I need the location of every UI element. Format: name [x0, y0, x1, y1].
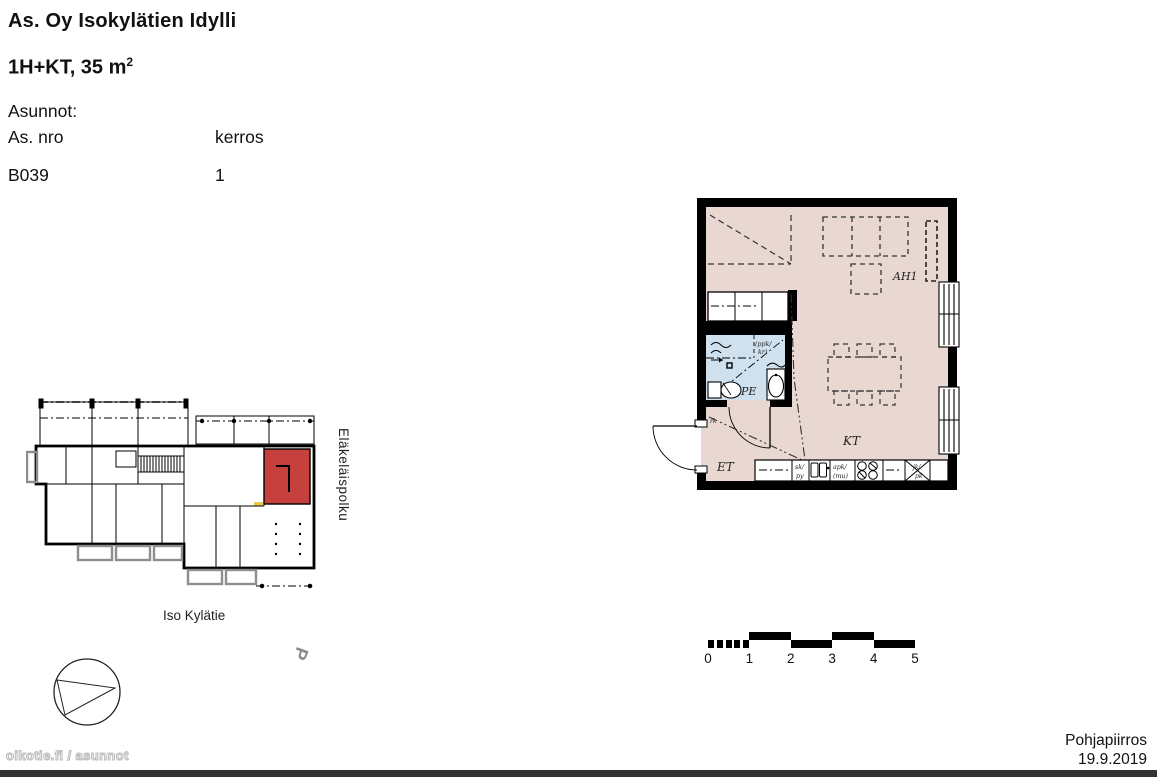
- apartment-type: 1H+KT, 35 m2: [8, 55, 133, 80]
- dishwasher-label-line2: (mu): [833, 473, 848, 480]
- scale-tick-3: 3: [828, 651, 836, 666]
- drawing-info: Pohjapiirros 19.9.2019: [1065, 731, 1147, 769]
- page-title: As. Oy Isokylätien Idylli: [8, 10, 236, 33]
- site-lower-rail: [256, 584, 314, 588]
- street-label-iso-kylatie: Iso Kylätie: [163, 608, 225, 623]
- site-entrance-marker: [254, 502, 263, 506]
- scale-tick-4: 4: [870, 651, 878, 666]
- drawing-type: Pohjapiirros: [1065, 731, 1147, 750]
- apartment-floor-plan: (ppk/ kr) PE rk: [642, 198, 962, 490]
- column-floor: kerros: [215, 127, 264, 148]
- sink-icon: [767, 363, 785, 400]
- cleaning-cabinet-label-line1: sk/: [795, 464, 805, 471]
- fridge-freezer-label-line1: jk/: [911, 464, 921, 471]
- scale-tick-1: 1: [746, 651, 754, 666]
- north-flag-icon: P: [278, 642, 313, 674]
- entry-label: ET: [716, 460, 735, 474]
- drawing-date: 19.9.2019: [1065, 750, 1147, 769]
- washer-dryer-label-line2: kr): [758, 349, 768, 356]
- bathroom-label: PE: [740, 385, 756, 398]
- floorplan-page: { "header": { "title": "As. Oy Isokyläti…: [0, 0, 1157, 777]
- kitchen-sink-icon: [811, 463, 829, 477]
- scale-bar: 0 1 2 3 4 5: [700, 629, 930, 669]
- kitchen-label: KT: [842, 434, 861, 448]
- closet-row: [708, 290, 797, 321]
- site-upper-right-terrace: [196, 416, 314, 444]
- dishwasher-label-line1: apk/: [833, 464, 848, 471]
- kitchen-counter: sk/ py apk/ (mu) jk/ pk: [755, 460, 948, 481]
- compass-icon: [50, 652, 130, 732]
- scale-tick-2: 2: [787, 651, 795, 666]
- site-highlighted-unit: [264, 449, 310, 504]
- fridge-freezer-label-line2: pk: [915, 473, 923, 480]
- scale-tick-5: 5: [911, 651, 919, 666]
- apartments-label: Asunnot:: [8, 101, 77, 122]
- window-symbol-lower: [939, 387, 959, 454]
- floor-value: 1: [215, 165, 225, 186]
- site-upper-left-wing: [39, 399, 188, 446]
- apartment-number-value: B039: [8, 165, 49, 186]
- column-apartment-number: As. nro: [8, 127, 63, 148]
- site-plan: [26, 396, 356, 596]
- site-stairs: [138, 456, 184, 472]
- bottom-bar: [0, 770, 1157, 777]
- apartment-type-text: 1H+KT, 35 m: [8, 57, 126, 79]
- living-room-label: AH1: [892, 270, 918, 283]
- scale-tick-0: 0: [704, 651, 712, 666]
- cleaning-cabinet-label-line2: py: [796, 473, 804, 480]
- toilet-icon: [708, 382, 741, 398]
- street-label-elakelaispolku: Eläkeläispolku: [336, 428, 351, 521]
- window-symbol-upper: [939, 282, 959, 347]
- entrance-door: [653, 420, 707, 473]
- apartment-type-sup: 2: [126, 55, 133, 69]
- washer-dryer-label-line1: (ppk/: [755, 341, 772, 348]
- watermark: oikotie.fi / asunnot: [6, 748, 129, 763]
